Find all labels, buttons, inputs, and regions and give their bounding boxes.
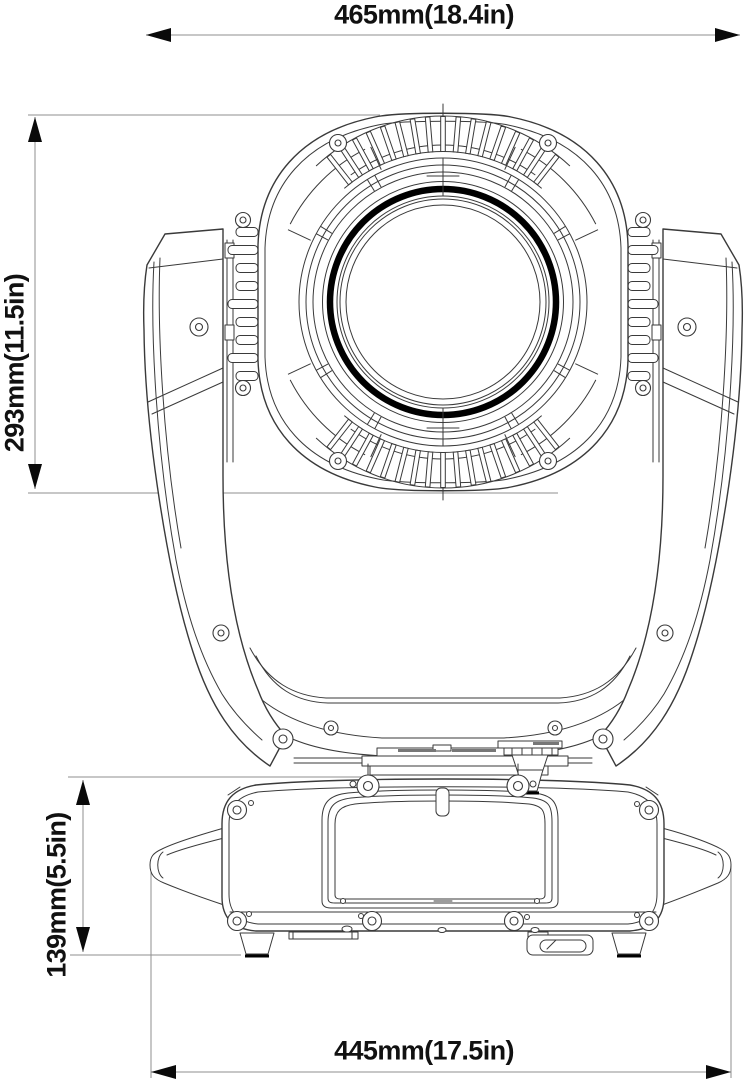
screw-icon	[357, 775, 379, 797]
screw-icon	[540, 135, 557, 152]
screw-icon	[540, 453, 557, 470]
screw-icon	[330, 135, 347, 152]
side-tab	[652, 325, 661, 340]
screw-icon	[657, 625, 673, 641]
screw-icon	[324, 721, 338, 735]
arrow-icon	[706, 1065, 731, 1079]
screw-icon	[636, 213, 651, 228]
screw-icon	[636, 381, 651, 396]
base-feet	[240, 932, 646, 956]
handle-left	[150, 828, 224, 905]
screw-icon	[330, 453, 347, 470]
screw-icon	[507, 775, 529, 797]
handle-right	[662, 828, 731, 905]
screw-icon	[228, 912, 247, 931]
screw-icon	[505, 912, 524, 931]
dim-label-base-width: 445mm(17.5in)	[334, 1036, 514, 1067]
screw-icon	[273, 729, 293, 749]
dimension-drawing-page: 465mm(18.4in) 293mm(11.5in) 139mm(5.5in)…	[0, 0, 744, 1080]
screw-icon	[236, 213, 251, 228]
fixture-head	[225, 104, 661, 500]
side-tab	[225, 325, 234, 340]
arrow-icon	[28, 117, 42, 142]
dim-label-base-height: 139mm(5.5in)	[42, 812, 73, 977]
screw-icon	[640, 912, 659, 931]
screw-icon	[593, 729, 613, 749]
arrow-icon	[76, 780, 90, 805]
screw-icon	[640, 801, 659, 820]
screw-icon	[548, 721, 562, 735]
bottom-plate	[289, 932, 358, 939]
screw-icon	[190, 318, 208, 336]
screw-icon	[363, 912, 382, 931]
arrow-icon	[146, 28, 171, 42]
fixture-line-art	[0, 0, 744, 1080]
arrow-icon	[28, 464, 42, 489]
window-top-tab	[436, 788, 449, 816]
foot-right	[612, 933, 646, 954]
dim-label-head-height: 293mm(11.5in)	[0, 274, 31, 452]
dim-label-overall-width: 465mm(18.4in)	[334, 0, 514, 31]
arrow-icon	[151, 1065, 176, 1079]
screw-icon	[228, 801, 247, 820]
screw-icon	[213, 625, 229, 641]
screw-icon	[678, 318, 696, 336]
arrow-icon	[76, 927, 90, 952]
arrow-icon	[715, 28, 740, 42]
screw-icon	[236, 381, 251, 396]
foot-left	[240, 933, 274, 954]
